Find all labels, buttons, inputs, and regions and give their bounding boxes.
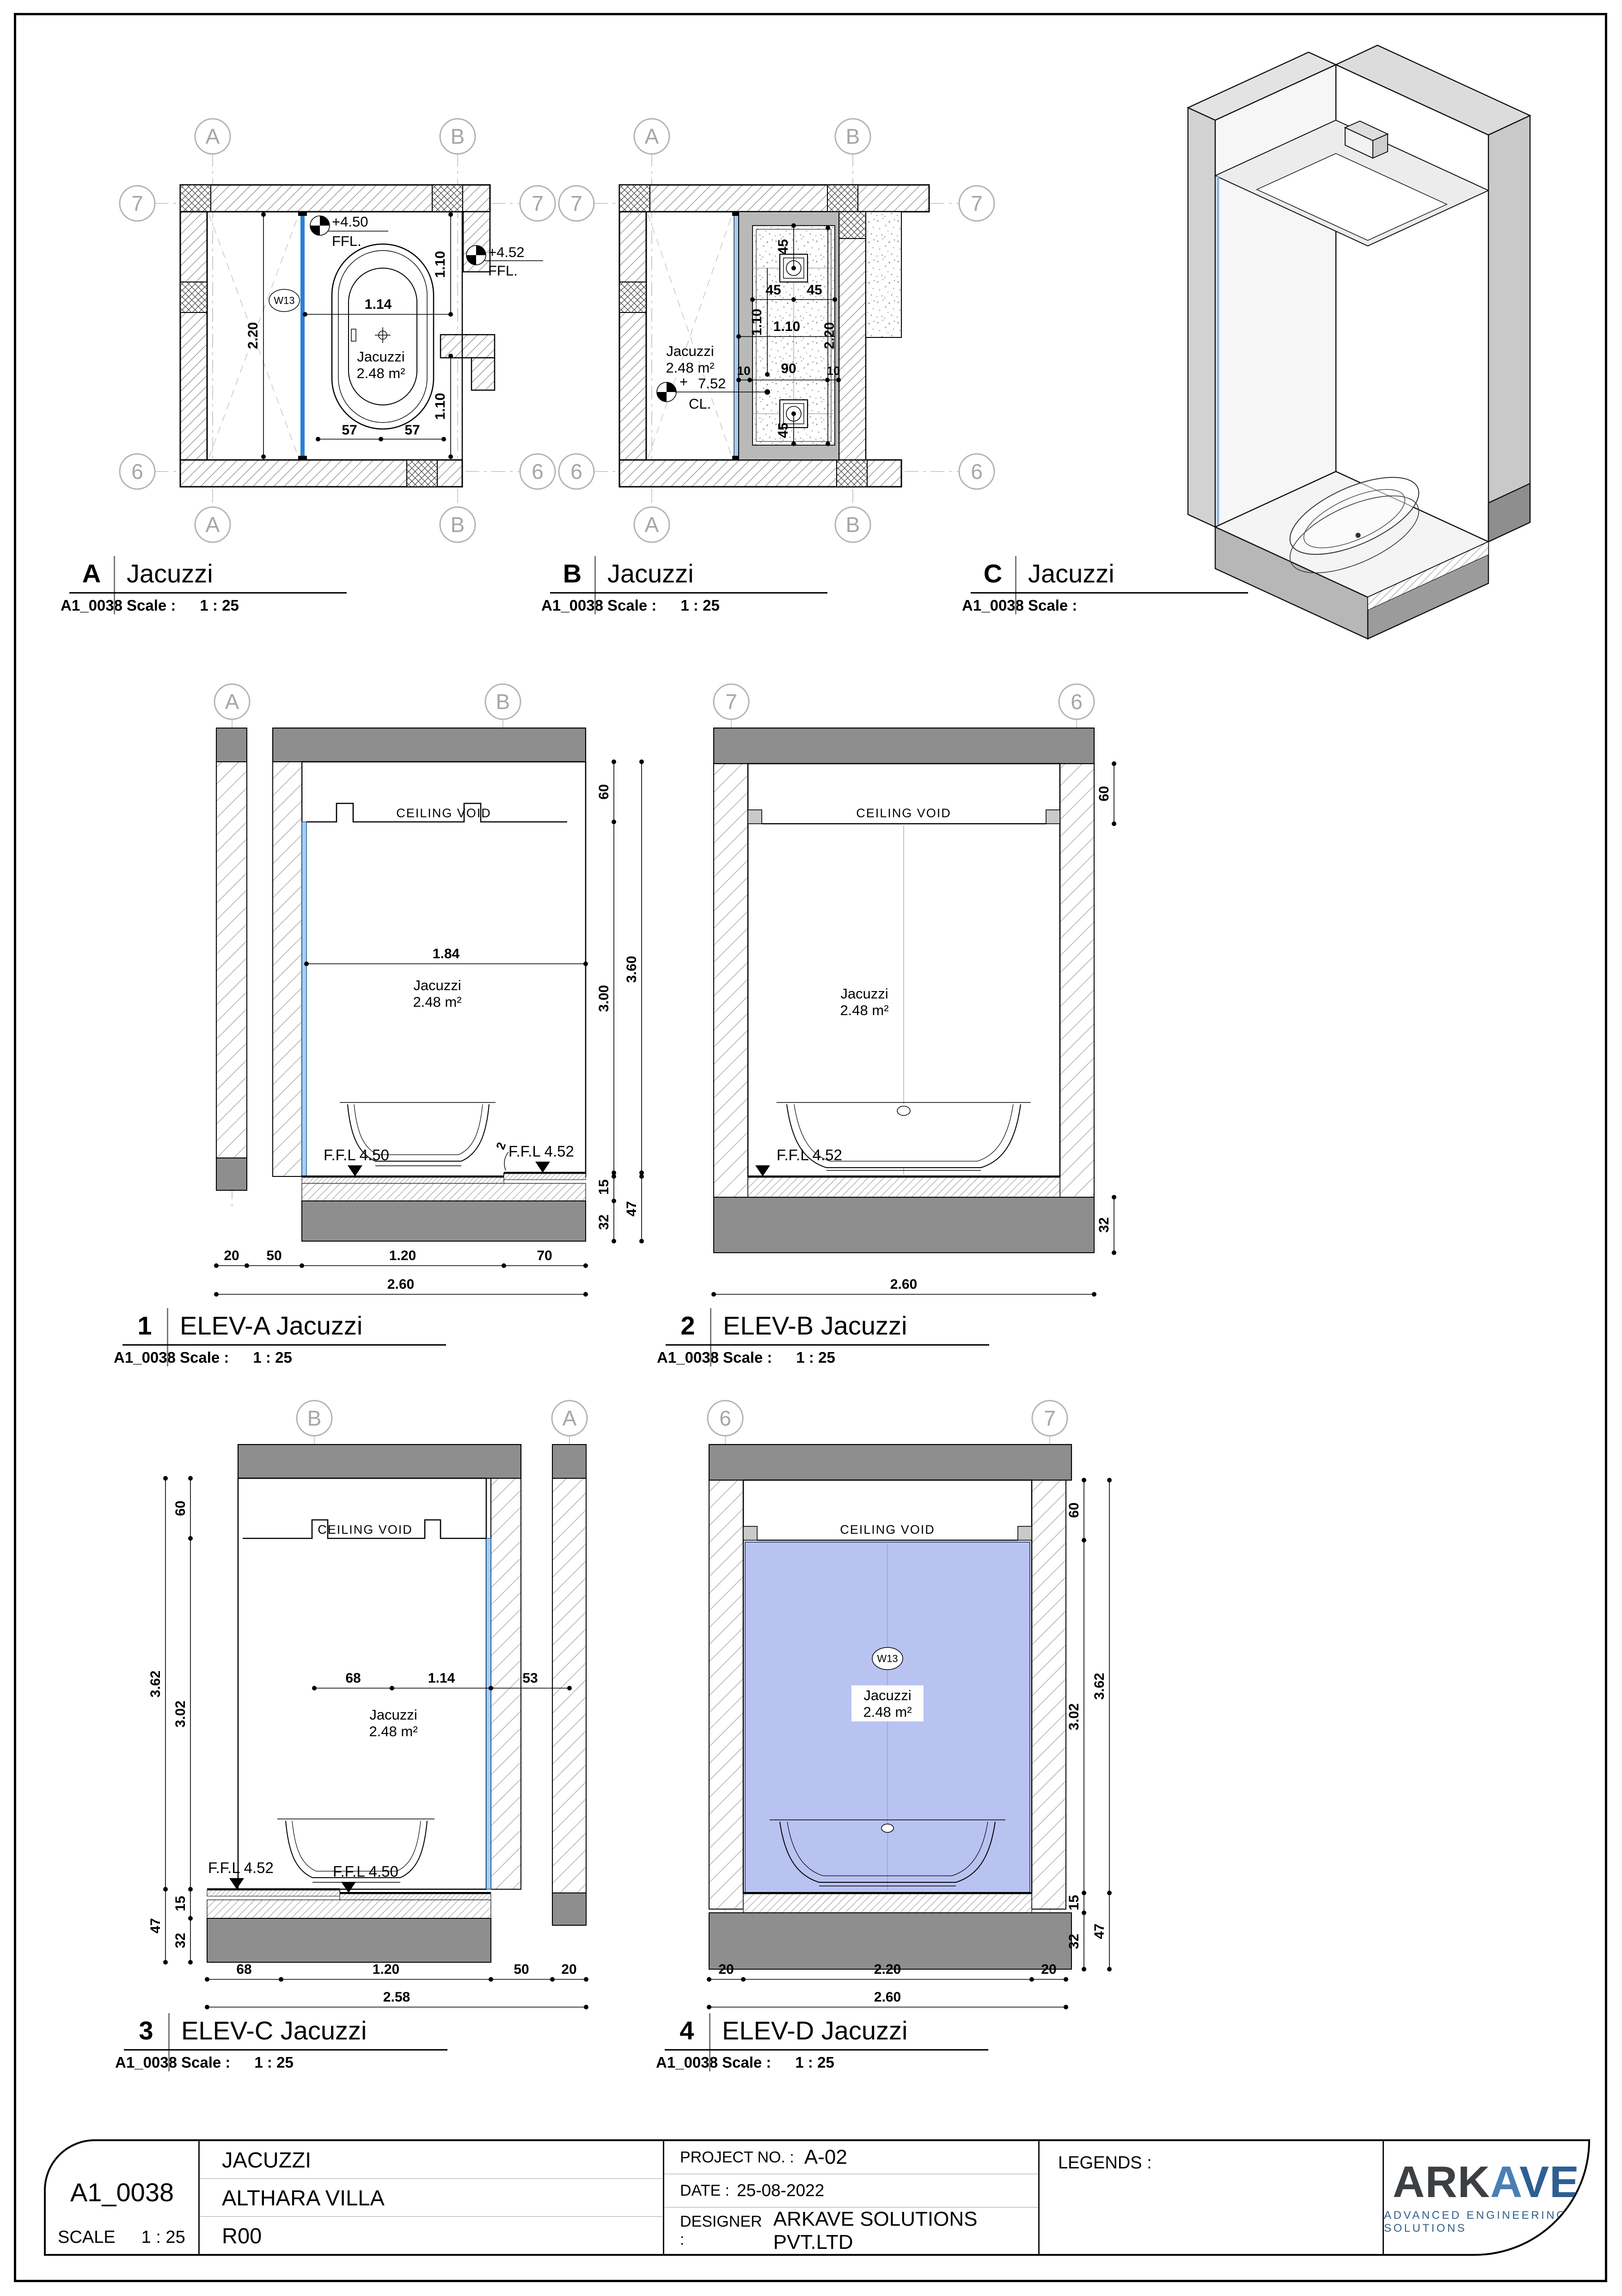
grid-bubble: A	[214, 684, 250, 719]
view-sheet-no: A1_0038	[122, 1344, 167, 1366]
grid-bubble: B	[440, 119, 475, 154]
date-label: DATE :	[680, 2182, 729, 2200]
dim-110-v: 1.10	[749, 309, 765, 336]
room-area: 2.48 m²	[840, 1002, 888, 1018]
spot-datum: FFL.	[332, 233, 361, 249]
view-label-elev-1: 1 ELEV-A Jacuzzi A1_0038 Scale :1 : 25	[122, 1308, 446, 1366]
dim-110-bot: 1.10	[433, 393, 448, 420]
view-sheet-no: A1_0038	[665, 2049, 709, 2071]
dim-b20: 20	[561, 1962, 576, 1977]
grid-bubble: B	[297, 1401, 332, 1436]
dim-10-r: 10	[827, 364, 840, 378]
window-tag: W13	[269, 289, 300, 312]
dim-302: 3.02	[173, 1701, 188, 1727]
dim-60: 60	[596, 784, 612, 799]
dim-15: 15	[1066, 1895, 1082, 1910]
scale-label: Scale :	[127, 597, 176, 614]
title-block-meta-section: PROJECT NO. :A-02 DATE :25-08-2022 DESIG…	[664, 2141, 1040, 2254]
dim-45-top: 45	[776, 239, 791, 254]
faucet	[351, 329, 356, 341]
grid-bubble: 7	[559, 186, 594, 221]
grid-bubble: B	[835, 507, 870, 542]
ceiling-void-label: CEILING VOID	[318, 1523, 413, 1537]
dim-60: 60	[1066, 1502, 1082, 1518]
grid-bubble: 7	[714, 684, 749, 719]
dim-m68: 68	[345, 1671, 361, 1686]
spot-value: +4.50	[332, 214, 368, 230]
dim-220-v: 2.20	[822, 322, 837, 349]
plan-b-view: A B 7 6 7 6 A B 45	[550, 116, 994, 615]
scale-label: Scale :	[181, 2054, 230, 2071]
grid-label: 6	[1071, 690, 1083, 714]
dim-b20: 20	[224, 1248, 239, 1263]
dim-362: 3.62	[148, 1671, 163, 1697]
project-name: ALTHARA VILLA	[200, 2179, 663, 2217]
room-area: 2.48 m²	[666, 360, 714, 376]
grid-label: 7	[725, 690, 737, 714]
view-key: B	[550, 556, 594, 592]
designer-name: ARKAVE SOLUTIONS PVT.LTD	[763, 2208, 1038, 2254]
grid-label: 7	[131, 191, 143, 215]
dim-15: 15	[596, 1179, 612, 1194]
spot-plus: +	[679, 373, 688, 390]
view-title: Jacuzzi	[594, 556, 827, 592]
grid-bubble: 6	[959, 454, 994, 489]
view-title: Jacuzzi	[114, 556, 347, 592]
ceiling-void-label: CEILING VOID	[396, 806, 491, 820]
grid-label: 7	[971, 191, 983, 215]
jacuzzi-tub-plan	[332, 244, 434, 429]
ffl-left: F.F.L 4.50	[324, 1146, 389, 1163]
title-block-legends-section: LEGENDS :	[1040, 2141, 1384, 2254]
grid-label: B	[451, 513, 465, 537]
axon-walls	[1188, 45, 1530, 542]
view-key: 4	[665, 2013, 709, 2049]
window-tag-label: W13	[877, 1653, 898, 1665]
window-tag-label: W13	[274, 295, 294, 306]
ffl-right: F.F.L 4.50	[333, 1863, 398, 1880]
grid-bubble: 6	[559, 454, 594, 489]
view-label-plan-a: A Jacuzzi A1_0038 Scale :1 : 25	[69, 556, 347, 614]
grid-bubble: 6	[120, 454, 155, 489]
dim-90: 90	[781, 361, 796, 376]
ffl-left: F.F.L 4.52	[208, 1859, 274, 1876]
view-title: ELEV-C Jacuzzi	[168, 2013, 447, 2049]
grid-label: 7	[1044, 1406, 1056, 1430]
dim-b20r: 20	[1041, 1962, 1056, 1977]
view-sheet-no: A1_0038	[666, 1344, 710, 1366]
arkave-logo: ARKAVE	[1393, 2160, 1579, 2204]
view-title: ELEV-B Jacuzzi	[710, 1308, 989, 1344]
dim-b120: 1.20	[389, 1248, 416, 1263]
project-no-label: PROJECT NO. :	[680, 2149, 794, 2167]
dim-114: 1.14	[365, 297, 392, 312]
grid-bubble: 6	[708, 1401, 743, 1436]
dim-15: 15	[173, 1896, 188, 1911]
dim-45-l: 45	[765, 282, 781, 298]
grid-label: 7	[532, 191, 544, 215]
dim-45-bot: 45	[776, 422, 791, 438]
elev-b-view: 7 6 CEILING VOID Jacuzzi 2.48 m² F.F.L 4…	[707, 680, 1151, 1336]
logo-part-a: A	[1490, 2157, 1519, 2207]
scale-value: 1 : 25	[680, 597, 719, 614]
grid-bubble: B	[485, 684, 520, 719]
spot-value: 7.52	[698, 375, 726, 392]
grid-label: B	[451, 124, 465, 148]
grid-bubble: A	[634, 119, 669, 154]
dim-32: 32	[1096, 1217, 1112, 1232]
date-value: 25-08-2022	[729, 2181, 824, 2200]
grid-label: B	[307, 1406, 322, 1430]
dim-47: 47	[624, 1201, 639, 1216]
view-key: A	[69, 556, 114, 592]
dim-32: 32	[173, 1933, 188, 1948]
dim-total: 2.60	[890, 1277, 917, 1292]
dim-b68: 68	[236, 1962, 251, 1977]
grid-label: A	[225, 690, 239, 714]
view-key: 2	[666, 1308, 710, 1344]
revision: R00	[200, 2217, 663, 2254]
room-name: Jacuzzi	[369, 1707, 417, 1723]
view-key: 3	[124, 2013, 168, 2049]
dim-47: 47	[1092, 1923, 1107, 1939]
axonometric-view	[1049, 37, 1604, 592]
dim-b20l: 20	[718, 1962, 734, 1977]
dim-10-l: 10	[737, 364, 751, 378]
glass-door	[298, 212, 307, 460]
grid-label: 6	[570, 459, 582, 484]
dim-57l: 57	[342, 422, 357, 438]
grid-label: A	[645, 513, 659, 537]
glass-strip	[486, 1538, 491, 1889]
ceiling-void-label: CEILING VOID	[856, 806, 951, 820]
grid-bubble: A	[195, 119, 230, 154]
grid-label: B	[496, 690, 510, 714]
dim-220: 2.20	[245, 322, 261, 349]
title-block: A1_0038 SCALE1 : 25 JACUZZI ALTHARA VILL…	[44, 2139, 1590, 2256]
spot-datum: CL.	[689, 396, 711, 412]
glass-strip	[302, 822, 306, 1176]
dim-110-top: 1.10	[433, 251, 448, 278]
scale-value: 1 : 25	[200, 597, 239, 614]
dim-b120: 1.20	[373, 1962, 399, 1977]
dim-b50: 50	[266, 1248, 282, 1263]
sheet-number: A1_0038	[46, 2177, 198, 2207]
dim-60: 60	[173, 1500, 188, 1516]
dim-32: 32	[596, 1214, 612, 1230]
dim-110-h: 1.10	[773, 319, 800, 334]
grid-bubble: A	[634, 507, 669, 542]
elev-c-view: B A CEILING VOID 68 1.14 53 Jacuzzi 2.48…	[139, 1396, 638, 2052]
floor-buildup	[709, 1893, 1071, 1969]
grid-bubble: A	[195, 507, 230, 542]
grid-label: 7	[570, 191, 582, 215]
grid-label: A	[206, 124, 220, 148]
grid-label: A	[206, 513, 220, 537]
dim-b50: 50	[514, 1962, 529, 1977]
dim-total: 2.58	[383, 1990, 410, 2005]
scale-label: Scale :	[723, 1349, 772, 1366]
dim-b220: 2.20	[874, 1962, 901, 1977]
room-name: Jacuzzi	[357, 349, 404, 365]
structure	[709, 1445, 1071, 1909]
dim-m53: 53	[522, 1671, 538, 1686]
dim-360: 3.60	[624, 956, 639, 983]
scale-value: 1 : 25	[796, 1349, 835, 1366]
scale-value: 1 : 25	[795, 2054, 834, 2071]
grid-bubble: 7	[959, 186, 994, 221]
dim-57r: 57	[404, 422, 420, 438]
view-sheet-no: A1_0038	[69, 592, 114, 614]
view-key: C	[971, 556, 1015, 592]
view-label-elev-2: 2 ELEV-B Jacuzzi A1_0038 Scale :1 : 25	[666, 1308, 989, 1366]
project-no: A-02	[794, 2146, 847, 2169]
view-label-elev-4: 4 ELEV-D Jacuzzi A1_0038 Scale :1 : 25	[665, 2013, 988, 2071]
room-name: Jacuzzi	[863, 1687, 911, 1703]
dim-m114: 1.14	[428, 1671, 455, 1686]
grid-label: B	[846, 124, 860, 148]
dim-60: 60	[1096, 786, 1112, 801]
spot-datum: FFL.	[488, 263, 518, 279]
floor-buildup	[714, 1176, 1094, 1253]
scale-label: Scale :	[722, 2054, 771, 2071]
view-label-elev-3: 3 ELEV-C Jacuzzi A1_0038 Scale :1 : 25	[124, 2013, 447, 2071]
title-block-sheet-section: A1_0038 SCALE1 : 25	[46, 2141, 200, 2254]
room-area: 2.48 m²	[369, 1723, 417, 1739]
scale-label: Scale :	[180, 1349, 229, 1366]
grid-label: A	[563, 1406, 577, 1430]
designer-label: DESIGNER :	[680, 2213, 763, 2249]
grid-label: A	[645, 124, 659, 148]
grid-bubble: B	[440, 507, 475, 542]
dim-302: 3.02	[1066, 1703, 1082, 1730]
grid-bubble: 7	[120, 186, 155, 221]
drawing-title: JACUZZI	[200, 2141, 663, 2179]
view-sheet-no: A1_0038	[971, 592, 1015, 614]
logo-part-ark: ARK	[1393, 2157, 1490, 2207]
dim-total: 2.60	[387, 1277, 414, 1292]
drawing-sheet: A B 7 6 7 6 A B +4.50 FFL.	[0, 0, 1622, 2296]
drain	[897, 1106, 910, 1115]
scale-label: Scale :	[1028, 597, 1077, 614]
scale-value: 1 : 25	[141, 2228, 185, 2247]
grid-bubble: B	[835, 119, 870, 154]
grid-label: B	[846, 513, 860, 537]
spot-value: +4.52	[488, 244, 524, 260]
grid-label: 6	[532, 459, 544, 484]
room-area: 2.48 m²	[356, 365, 405, 381]
room-area: 2.48 m²	[863, 1704, 912, 1720]
view-title: Jacuzzi	[1015, 556, 1248, 592]
grid-label: 6	[971, 459, 983, 484]
view-key: 1	[122, 1308, 167, 1344]
room-area: 2.48 m²	[413, 994, 461, 1010]
dim-47: 47	[148, 1918, 163, 1933]
view-label-view-c: C Jacuzzi A1_0038 Scale :	[971, 556, 1248, 614]
view-sheet-no: A1_0038	[124, 2049, 168, 2071]
scale-value: 1 : 25	[253, 1349, 292, 1366]
room-name: Jacuzzi	[413, 977, 461, 993]
ffl-label: F.F.L 4.52	[777, 1146, 842, 1163]
grid-bubble: A	[552, 1401, 587, 1436]
title-block-project-section: JACUZZI ALTHARA VILLA R00	[200, 2141, 664, 2254]
dim-300: 3.00	[596, 985, 612, 1012]
dim-45-r: 45	[807, 282, 822, 298]
drain	[881, 1824, 894, 1832]
plan-a-view: A B 7 6 7 6 A B +4.50 FFL.	[111, 116, 555, 615]
dim-362: 3.62	[1092, 1673, 1107, 1700]
view-sheet-no: A1_0038	[550, 592, 594, 614]
view-label-plan-b: B Jacuzzi A1_0038 Scale :1 : 25	[550, 556, 827, 614]
scale-value: 1 : 25	[254, 2054, 293, 2071]
floor-buildup	[207, 1889, 491, 1962]
view-title: ELEV-A Jacuzzi	[167, 1308, 446, 1344]
view-title: ELEV-D Jacuzzi	[709, 2013, 988, 2049]
logo-part-ve: VE	[1519, 2157, 1579, 2207]
scale-label: SCALE	[58, 2228, 116, 2247]
room-name: Jacuzzi	[666, 343, 714, 359]
floor-buildup	[302, 1173, 586, 1241]
ceiling-void-label: CEILING VOID	[840, 1523, 935, 1537]
room-name: Jacuzzi	[840, 986, 888, 1002]
dim-32: 32	[1066, 1934, 1082, 1949]
dim-total: 2.60	[874, 1990, 901, 2005]
ffl-right: F.F.L 4.52	[508, 1143, 574, 1160]
scale-label: Scale :	[607, 597, 656, 614]
grid-label: 6	[131, 459, 143, 484]
elev-d-view: 6 7 CEILING VOID W13 Jacuzzi 2.48 m² 60 …	[703, 1396, 1146, 2052]
legends-label: LEGENDS :	[1058, 2153, 1152, 2173]
dim-184: 1.84	[433, 946, 460, 961]
grid-bubble: 6	[1059, 684, 1094, 719]
window-tag: W13	[872, 1647, 903, 1670]
grid-label: 6	[719, 1406, 731, 1430]
elev-a-view: A B CEILING VOID 1.84 Jacuzzi 2.48 m² F.…	[185, 680, 684, 1336]
dim-b70: 70	[537, 1248, 552, 1263]
grid-bubble: 7	[1032, 1401, 1067, 1436]
